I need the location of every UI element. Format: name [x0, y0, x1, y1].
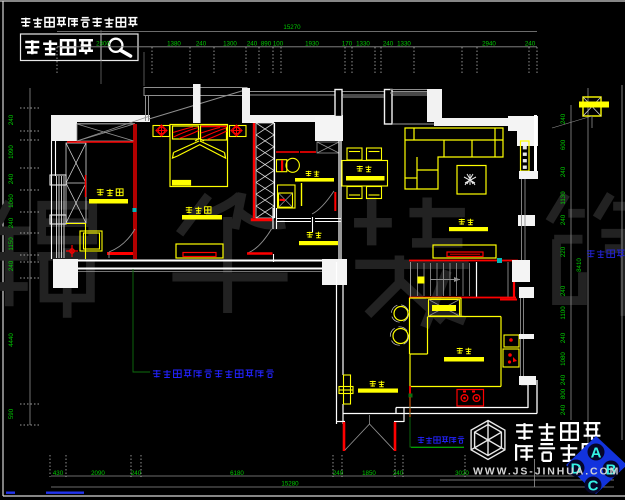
svg-text:A: A: [591, 445, 602, 462]
svg-text:1380: 1380: [167, 41, 181, 48]
svg-text:1330: 1330: [356, 41, 370, 48]
svg-text:2090: 2090: [91, 470, 105, 477]
svg-text:15280: 15280: [281, 481, 299, 488]
svg-text:1100: 1100: [560, 306, 567, 320]
svg-text:WWW.JS-JINHUA.COM: WWW.JS-JINHUA.COM: [473, 466, 620, 478]
svg-text:1330: 1330: [397, 41, 411, 48]
svg-text:240: 240: [560, 404, 567, 415]
svg-text:800: 800: [560, 388, 567, 399]
svg-text:170: 170: [342, 41, 353, 48]
svg-text:2300: 2300: [96, 41, 110, 48]
svg-text:220: 220: [560, 246, 567, 257]
svg-text:240: 240: [560, 113, 567, 124]
svg-text:6180: 6180: [230, 470, 244, 477]
svg-text:2940: 2940: [482, 41, 496, 48]
svg-text:600: 600: [560, 139, 567, 150]
svg-text:240: 240: [560, 166, 567, 177]
svg-text:1090: 1090: [8, 145, 15, 159]
svg-text:240: 240: [393, 470, 404, 477]
svg-text:1150: 1150: [8, 237, 15, 251]
svg-text:3020: 3020: [455, 470, 469, 477]
svg-text:240: 240: [560, 214, 567, 225]
svg-text:240: 240: [383, 41, 394, 48]
svg-text:890: 890: [261, 41, 272, 48]
svg-text:8410: 8410: [576, 258, 583, 272]
svg-text:240: 240: [8, 217, 15, 228]
svg-text:240: 240: [560, 285, 567, 296]
svg-text:240: 240: [525, 41, 536, 48]
svg-text:1130: 1130: [560, 191, 567, 205]
svg-text:240: 240: [131, 470, 142, 477]
svg-text:1060: 1060: [8, 194, 15, 208]
svg-text:240: 240: [8, 173, 15, 184]
svg-text:590: 590: [8, 408, 15, 419]
svg-text:240: 240: [247, 41, 258, 48]
svg-text:240: 240: [8, 114, 15, 125]
svg-text:1080: 1080: [560, 352, 567, 366]
svg-text:240: 240: [560, 374, 567, 385]
svg-text:15270: 15270: [283, 24, 301, 31]
svg-text:100: 100: [273, 41, 284, 48]
svg-text:4440: 4440: [8, 333, 15, 347]
svg-text:1930: 1930: [305, 41, 319, 48]
svg-text:1300: 1300: [223, 41, 237, 48]
svg-text:C: C: [588, 478, 599, 495]
svg-text:1850: 1850: [362, 470, 376, 477]
svg-text:240: 240: [196, 41, 207, 48]
svg-text:430: 430: [53, 470, 64, 477]
svg-text:240: 240: [560, 332, 567, 343]
svg-text:240: 240: [8, 260, 15, 271]
